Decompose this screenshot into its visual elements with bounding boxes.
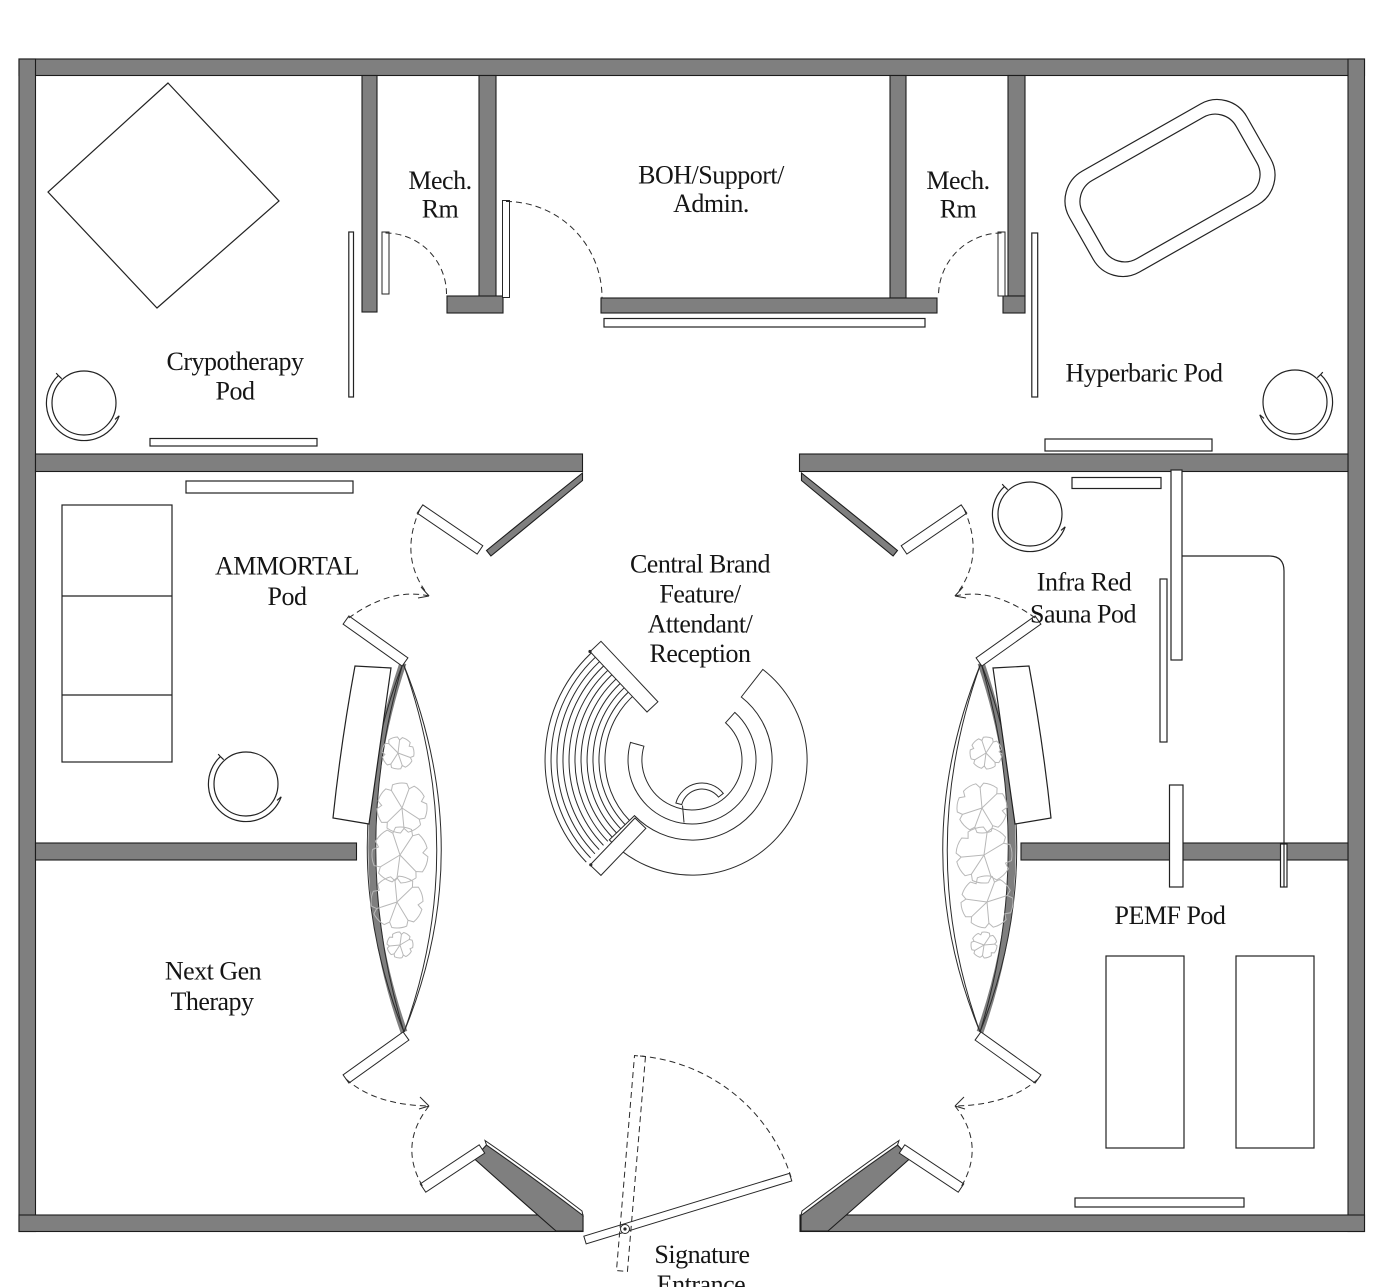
svg-text:Central Brand: Central Brand bbox=[630, 550, 771, 579]
svg-text:Signature: Signature bbox=[654, 1240, 749, 1269]
svg-text:Next Gen: Next Gen bbox=[165, 957, 262, 986]
svg-text:BOH/Support/: BOH/Support/ bbox=[638, 161, 785, 190]
svg-text:Mech.: Mech. bbox=[408, 166, 471, 195]
svg-text:Rm: Rm bbox=[940, 195, 977, 224]
svg-text:Reception: Reception bbox=[650, 639, 751, 668]
svg-text:Feature/: Feature/ bbox=[659, 580, 741, 609]
svg-text:Crypotherapy: Crypotherapy bbox=[167, 347, 304, 376]
svg-text:Hyperbaric Pod: Hyperbaric Pod bbox=[1066, 359, 1223, 388]
svg-text:AMMORTAL: AMMORTAL bbox=[215, 552, 359, 581]
svg-text:Therapy: Therapy bbox=[170, 987, 254, 1016]
svg-text:PEMF Pod: PEMF Pod bbox=[1115, 901, 1226, 930]
svg-text:Admin.: Admin. bbox=[673, 189, 749, 218]
svg-text:Pod: Pod bbox=[216, 377, 255, 406]
svg-text:Rm: Rm bbox=[422, 195, 459, 224]
svg-text:Infra Red: Infra Red bbox=[1037, 568, 1132, 597]
svg-text:Pod: Pod bbox=[268, 582, 307, 611]
svg-text:Mech.: Mech. bbox=[926, 166, 989, 195]
svg-text:Sauna Pod: Sauna Pod bbox=[1030, 600, 1137, 629]
svg-text:Entrance: Entrance bbox=[657, 1270, 745, 1287]
svg-text:Attendant/: Attendant/ bbox=[648, 610, 754, 639]
